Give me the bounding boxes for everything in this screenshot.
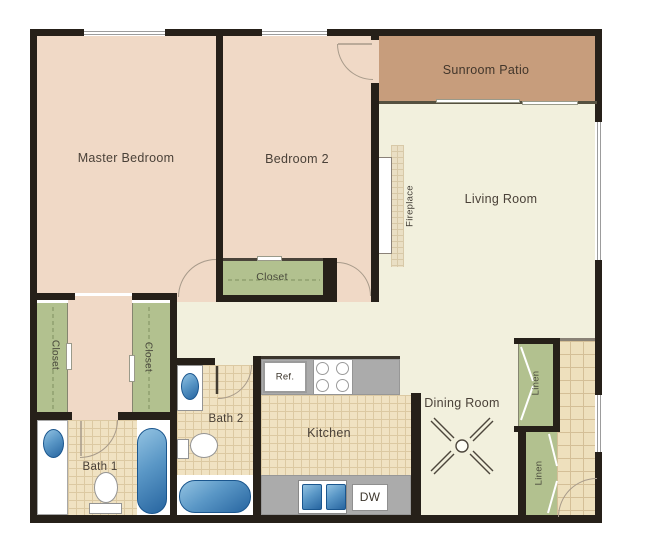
label-sunroom-patio: Sunroom Patio (443, 63, 530, 77)
wall-hall-left (170, 293, 177, 518)
kitchen-sink-basin-right (326, 484, 346, 510)
label-linen-upper: Linen (531, 371, 542, 396)
bathtub-bath2 (179, 480, 251, 513)
window-living-room (595, 122, 602, 260)
stove-burner (316, 362, 329, 375)
wall-left (30, 29, 37, 523)
label-bedroom-2: Bedroom 2 (265, 152, 329, 166)
room-master-hall (68, 296, 132, 420)
wall-bottom (30, 515, 602, 523)
sliding-door-closet-bedroom2 (257, 256, 282, 261)
sink-bath1 (43, 429, 64, 458)
wall-linen-upper-right (553, 338, 560, 432)
fireplace-hearth (391, 145, 404, 267)
label-refrigerator: Ref. (276, 372, 295, 383)
window-bedroom-2 (262, 29, 327, 36)
sliding-door-closet-right (129, 355, 135, 382)
sliding-door-closet-left (66, 343, 72, 370)
stove-burner (336, 362, 349, 375)
toilet-tank-bath2 (177, 439, 189, 459)
window-master-bedroom (84, 29, 165, 36)
label-closet-left: Closet (50, 340, 61, 370)
bathtub-bath1 (137, 428, 167, 514)
label-closet-right: Closet (143, 342, 154, 372)
label-dining-room: Dining Room (424, 396, 500, 410)
wall-master-bottom-a (30, 293, 75, 300)
wall-bedroom2-closet-block (323, 258, 337, 302)
wall-linen-lower-left (518, 426, 526, 517)
label-living-room: Living Room (465, 192, 538, 206)
stove-burner (316, 379, 329, 392)
sliding-glass-door-panel-1 (436, 99, 520, 103)
label-bath-1: Bath 1 (82, 461, 117, 473)
label-bath-2: Bath 2 (208, 413, 243, 425)
label-linen-lower: Linen (534, 461, 545, 486)
wall-bedroom2-bottom (216, 295, 337, 302)
sink-bath2 (181, 373, 199, 400)
label-fireplace: Fireplace (405, 185, 416, 227)
label-kitchen: Kitchen (307, 426, 351, 440)
label-closet-bedroom2: Closet (256, 271, 288, 283)
stove-burner (336, 379, 349, 392)
wall-bath1-top-a (30, 412, 72, 420)
window-dining-room (595, 395, 602, 452)
floor-plan: Master Bedroom Bedroom 2 Sunroom Patio L… (0, 0, 650, 559)
toilet-tank-bath1 (89, 503, 122, 514)
kitchen-sink-basin-left (302, 484, 322, 510)
sliding-glass-door-panel-2 (522, 101, 578, 105)
toilet-bowl-bath1 (94, 472, 118, 503)
wall-kitchen-left (253, 356, 261, 518)
wall-kitchen-right (411, 393, 421, 518)
wall-bath2-top (170, 358, 215, 365)
door-opening-bedroom2 (337, 295, 371, 302)
wall-bedroom-divider (216, 36, 223, 302)
label-master-bedroom: Master Bedroom (78, 151, 175, 165)
wall-bath1-top-b (118, 412, 177, 420)
toilet-bowl-bath2 (190, 433, 218, 458)
label-dishwasher: DW (360, 490, 381, 504)
